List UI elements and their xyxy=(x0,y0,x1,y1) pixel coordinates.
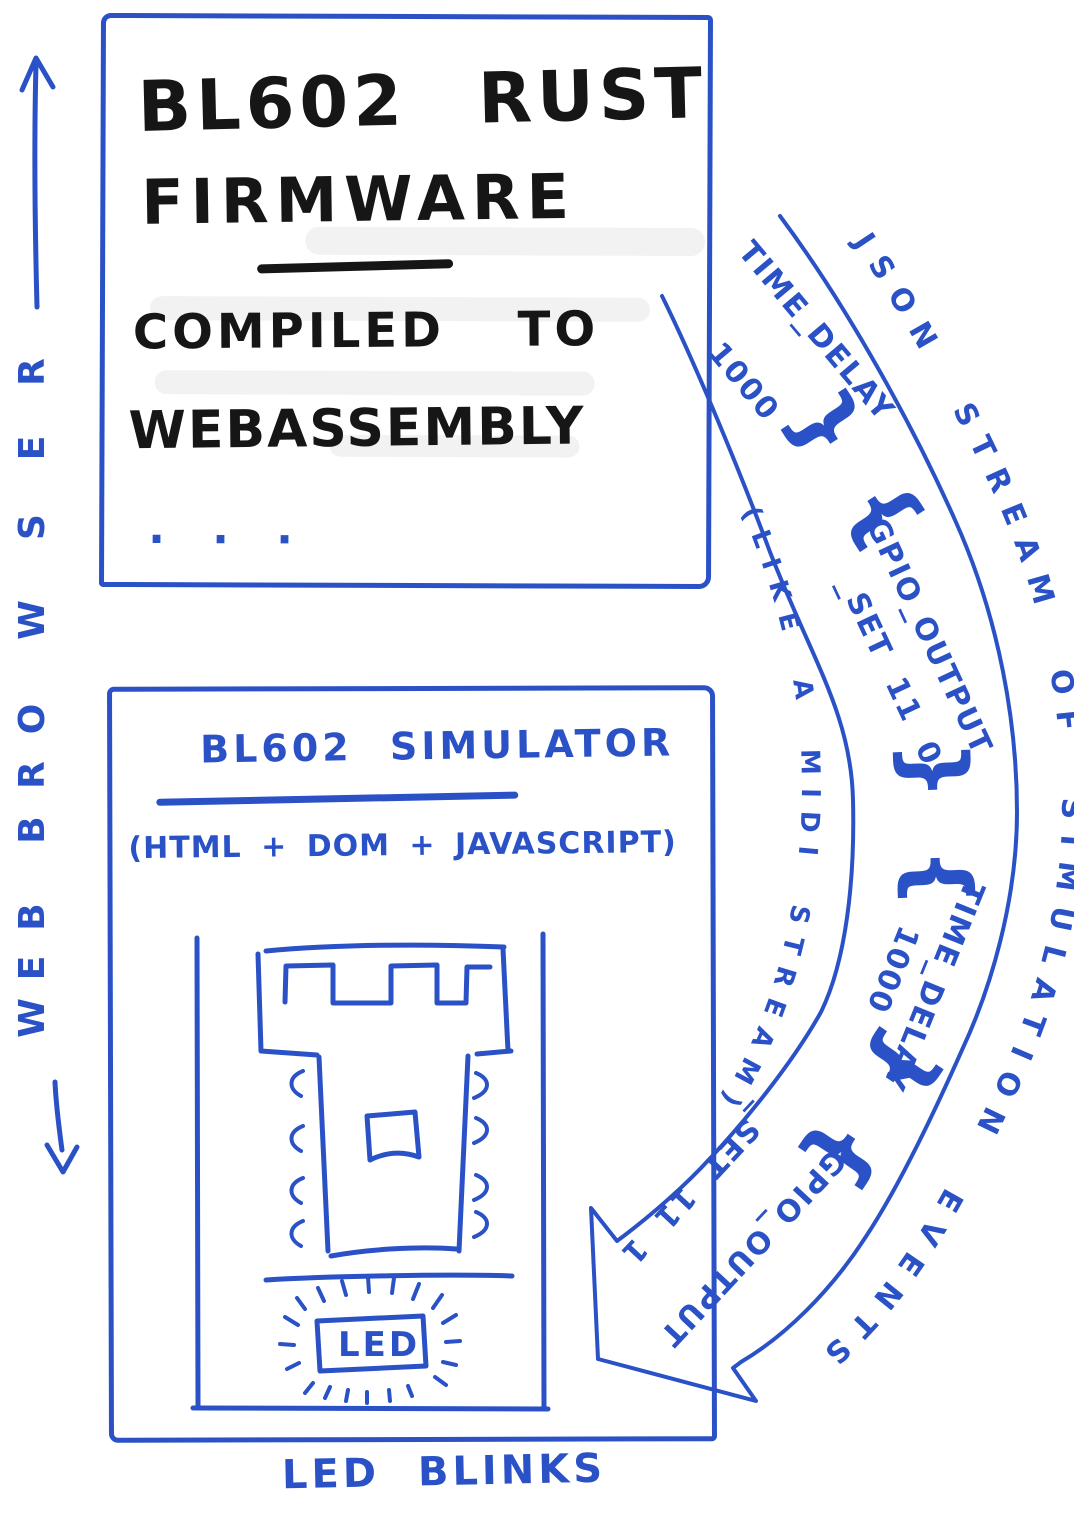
browser-frame-letter: B xyxy=(12,903,53,930)
browser-frame-letter: E xyxy=(12,956,53,981)
browser-frame-label: RESWORBBEW xyxy=(12,358,53,1038)
simulator-caption: LED BLINKS xyxy=(282,1449,607,1496)
svg-text:1000: 1000 xyxy=(701,336,787,429)
arrow-down-icon xyxy=(47,1082,77,1172)
event-separator-brace-1: } { xyxy=(770,371,943,564)
marker-smudge xyxy=(155,370,595,396)
browser-frame-letter: R xyxy=(12,358,53,386)
arrow-up-icon xyxy=(22,58,53,307)
browser-frame-letter: O xyxy=(12,704,53,735)
page-root: BL602 RUST FIRMWARE COMPILED TO WEBASSEM… xyxy=(0,0,1074,1526)
browser-frame-letter: B xyxy=(12,816,53,843)
event-gpio-output-1: GPIO_OUTPUT _SET 11 0 xyxy=(813,513,999,782)
firmware-title-line1: BL602 RUST xyxy=(137,58,708,142)
firmware-title-underline xyxy=(257,259,453,273)
simulator-title: BL602 SIMULATOR xyxy=(200,723,675,768)
browser-frame-letter: W xyxy=(12,998,53,1038)
svg-text:TIME_DELAY: TIME_DELAY xyxy=(875,876,991,1096)
stream-arrow-outer-label: JSON STREAM OF SIMULATION EVENTS xyxy=(806,225,1074,1381)
firmware-body-line1: COMPILED TO xyxy=(133,305,600,356)
event-separator-brace-2: } { xyxy=(886,739,990,909)
svg-text:1000: 1000 xyxy=(859,921,926,1019)
event-separator-brace-3: } { xyxy=(787,1014,962,1207)
firmware-ellipsis: · · · xyxy=(148,518,309,563)
svg-text:_SET 11 0: _SET 11 0 xyxy=(831,572,949,772)
browser-frame-letter: E xyxy=(12,436,53,461)
browser-frame-letter: W xyxy=(12,600,53,640)
simulator-box: BL602 SIMULATOR (HTML + DOM + JAVASCRIPT… xyxy=(107,685,717,1443)
svg-text:TIME_DELAY: TIME_DELAY xyxy=(731,235,902,429)
browser-frame-letter: S xyxy=(12,514,53,540)
firmware-box: BL602 RUST FIRMWARE COMPILED TO WEBASSEM… xyxy=(99,13,713,589)
firmware-title-line2: FIRMWARE xyxy=(141,166,576,234)
browser-frame-letter: R xyxy=(12,761,53,789)
event-time-delay-2: TIME_DELAY 1000 xyxy=(834,860,991,1097)
browser-frame: RESWORBBEW xyxy=(12,58,77,1172)
stream-arrow-inner-label: (LIKE A MIDI STREAM) xyxy=(708,502,825,1122)
svg-text:GPIO_OUTPUT: GPIO_OUTPUT xyxy=(859,513,1000,761)
firmware-body-line2: WEBASSEMBLY xyxy=(128,400,585,457)
simulator-subtitle: (HTML + DOM + JAVASCRIPT) xyxy=(128,828,677,864)
simulator-title-underline xyxy=(156,792,518,806)
